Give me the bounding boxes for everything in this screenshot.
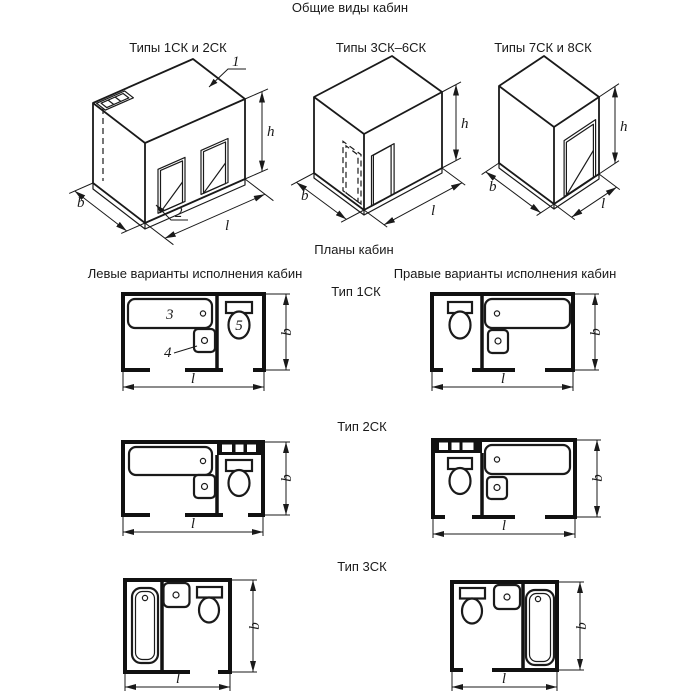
dim-label-b: b	[279, 474, 295, 482]
dim-l: l	[145, 179, 273, 245]
dim-b: b	[232, 580, 263, 672]
dim-label-l: l	[431, 203, 435, 219]
dim-label-l: l	[176, 671, 180, 687]
plan-type3-right: b l	[420, 545, 650, 697]
dim-label-l: l	[191, 516, 195, 532]
plans-section-title: Планы кабин	[274, 242, 434, 257]
bathtub-shape: 3	[128, 299, 212, 328]
dim-l: l	[123, 371, 264, 391]
bathtub-shape	[526, 590, 554, 665]
washbasin-shape	[164, 583, 190, 607]
bathtub-shape	[129, 447, 212, 475]
dim-label-l: l	[601, 196, 605, 212]
plan-type1-right: b l	[400, 285, 615, 403]
dim-label-b: b	[590, 474, 606, 482]
plan-type3-left: b l	[100, 545, 330, 697]
callout-base: 2	[175, 205, 183, 221]
technical-drawing-canvas: Общие виды кабин Типы 1СК и 2СК Типы 3СК…	[0, 0, 700, 700]
dim-b: b	[482, 163, 554, 216]
vent-block	[217, 442, 263, 455]
callout-washbasin: 4	[164, 345, 172, 361]
dim-label-b: b	[574, 622, 590, 630]
dim-l: l	[433, 518, 575, 538]
dim-label-l: l	[191, 371, 195, 387]
dim-label-l: l	[225, 218, 229, 234]
base-slab	[314, 168, 442, 215]
dim-label-h: h	[620, 119, 628, 135]
plan-type2-left: b l	[100, 415, 315, 548]
dim-label-b: b	[247, 622, 263, 630]
bathtub-shape	[485, 299, 570, 328]
base-slab	[499, 163, 599, 209]
cabin-box	[314, 56, 442, 215]
washbasin-shape	[194, 329, 215, 352]
plan-type1-left: 3 4 5 b l	[100, 285, 315, 403]
dim-b: b	[575, 294, 604, 370]
dim-label-l: l	[502, 671, 506, 687]
dim-b: b	[265, 442, 295, 515]
dim-label-b: b	[279, 328, 295, 336]
base-slab	[93, 179, 245, 229]
callout-cabin-body: 1	[232, 54, 240, 70]
callout-1: 1	[209, 54, 246, 87]
dim-label-l: l	[501, 371, 505, 387]
washbasin-shape	[488, 330, 508, 353]
right-variants-heading: Правые варианты исполнения кабин	[385, 266, 625, 281]
dim-h: h	[245, 89, 275, 179]
toilet-shape: 5	[226, 302, 252, 339]
iso-view-types-1-2: h b l 1 2	[58, 50, 288, 250]
washbasin-shape	[494, 585, 520, 609]
dim-b: b	[577, 440, 606, 517]
dim-l: l	[123, 516, 263, 536]
toilet-shape	[226, 460, 252, 496]
dim-l: l	[364, 168, 465, 227]
door-opening-front	[372, 144, 395, 207]
toilet-shape	[448, 302, 472, 339]
bathtub-shape	[485, 445, 570, 474]
toilet-shape	[448, 458, 472, 494]
door-opening-right	[201, 139, 228, 195]
dim-label-l: l	[502, 518, 506, 534]
dim-label-b: b	[489, 179, 497, 195]
toilet-shape	[460, 588, 485, 624]
iso-view-types-3-6: h b l	[285, 50, 480, 240]
left-variants-heading: Левые варианты исполнения кабин	[75, 266, 315, 281]
callout-bathtub: 3	[165, 307, 174, 323]
washbasin-shape	[487, 477, 507, 499]
dim-b: b	[266, 294, 295, 370]
callout-toilet: 5	[235, 318, 243, 334]
dim-h: h	[442, 82, 469, 168]
dim-l: l	[432, 371, 573, 391]
hidden-door-left-face	[343, 141, 361, 204]
plan-type2-right: b l	[400, 415, 615, 548]
washbasin-shape	[194, 475, 215, 498]
cabin-box	[499, 56, 599, 209]
dim-l: l	[452, 671, 557, 691]
toilet-shape	[197, 587, 222, 623]
iso-view-types-7-8: h b l	[480, 50, 655, 240]
dim-label-h: h	[267, 124, 275, 140]
callout-4: 4	[164, 345, 197, 361]
door-opening-front	[564, 120, 596, 197]
dim-h: h	[599, 84, 628, 174]
dim-label-b: b	[588, 328, 604, 336]
dim-b: b	[559, 582, 590, 670]
bathtub-shape	[132, 588, 158, 663]
dim-label-h: h	[461, 116, 469, 132]
dim-b: b	[69, 183, 145, 233]
vent-block	[433, 440, 482, 453]
dim-label-b: b	[301, 188, 309, 204]
page-title: Общие виды кабин	[0, 0, 700, 15]
dim-label-b: b	[77, 195, 85, 211]
